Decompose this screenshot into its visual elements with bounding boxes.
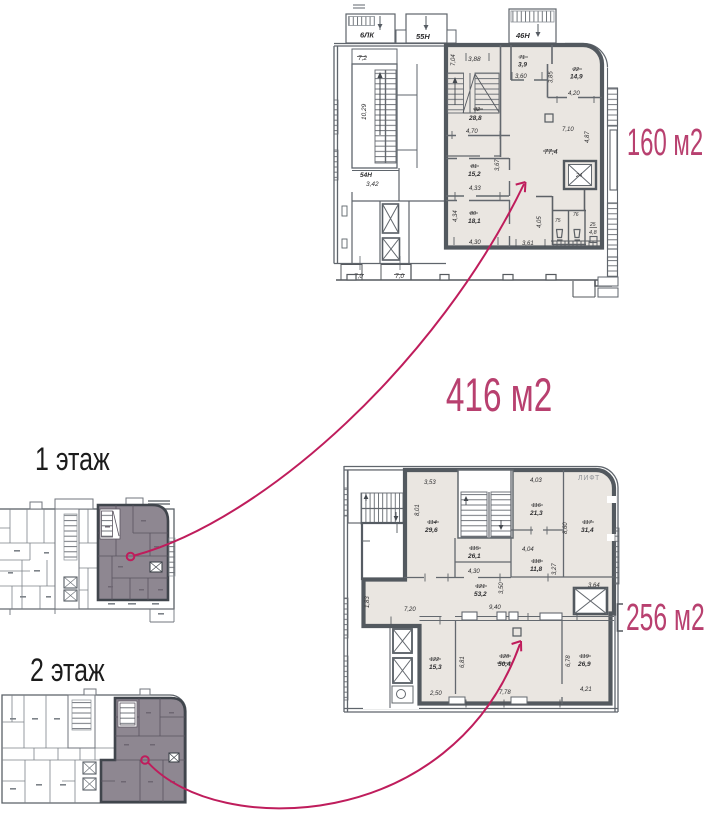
svg-text:3,27: 3,27: [552, 563, 558, 575]
svg-text:416 м2: 416 м2: [446, 368, 552, 421]
svg-text:114: 114: [428, 520, 437, 526]
svg-text:29,6: 29,6: [424, 527, 438, 534]
svg-text:46Н: 46Н: [515, 31, 530, 40]
svg-text:25: 25: [589, 222, 596, 228]
svg-text:3,50: 3,50: [499, 582, 505, 594]
svg-text:4,70: 4,70: [466, 129, 478, 135]
svg-text:76: 76: [573, 212, 579, 218]
svg-text:4,87: 4,87: [585, 131, 591, 143]
svg-text:21,3: 21,3: [529, 510, 543, 517]
svg-text:4,21: 4,21: [580, 687, 592, 693]
svg-text:160 м2: 160 м2: [627, 120, 703, 163]
svg-text:3,88: 3,88: [468, 56, 481, 63]
svg-text:75: 75: [555, 218, 561, 224]
svg-text:24: 24: [575, 173, 582, 179]
svg-text:15,2: 15,2: [468, 171, 481, 178]
svg-text:1,83: 1,83: [365, 596, 371, 608]
svg-text:80: 80: [470, 211, 477, 217]
svg-text:22: 22: [572, 67, 579, 73]
svg-text:4,33: 4,33: [469, 186, 481, 192]
svg-text:4,30: 4,30: [468, 569, 480, 575]
svg-text:55Н: 55Н: [416, 32, 430, 41]
svg-text:7,20: 7,20: [404, 607, 416, 613]
svg-text:4,8: 4,8: [589, 230, 598, 236]
svg-text:26,1: 26,1: [467, 553, 481, 560]
svg-text:7,2: 7,2: [358, 55, 367, 62]
svg-text:71: 71: [519, 55, 525, 61]
svg-text:119: 119: [580, 654, 589, 660]
svg-text:82: 82: [474, 107, 480, 113]
svg-text:121: 121: [476, 584, 485, 590]
svg-text:4,20: 4,20: [568, 91, 580, 97]
svg-text:3,85: 3,85: [549, 71, 555, 83]
svg-text:7,04: 7,04: [451, 54, 457, 66]
svg-text:118: 118: [532, 559, 542, 565]
svg-text:3,53: 3,53: [424, 480, 436, 486]
svg-text:ЛИФТ: ЛИФТ: [578, 475, 600, 482]
svg-text:81: 81: [471, 164, 477, 170]
svg-text:77,4: 77,4: [544, 149, 558, 156]
svg-text:2 этаж: 2 этаж: [30, 653, 105, 689]
svg-text:122: 122: [430, 657, 439, 663]
svg-text:3,67: 3,67: [495, 159, 501, 171]
svg-text:4,04: 4,04: [522, 547, 534, 553]
svg-text:8,60: 8,60: [563, 522, 569, 534]
svg-text:2,50: 2,50: [429, 691, 442, 697]
svg-text:116: 116: [532, 503, 542, 509]
svg-text:115: 115: [470, 546, 480, 552]
svg-text:54Н: 54Н: [360, 172, 372, 179]
svg-text:3,61: 3,61: [522, 241, 534, 247]
svg-text:1 этаж: 1 этаж: [35, 442, 110, 478]
svg-text:18,1: 18,1: [468, 218, 481, 225]
svg-text:256 м2: 256 м2: [626, 596, 705, 639]
svg-text:50,4: 50,4: [498, 661, 511, 668]
svg-text:14,9: 14,9: [570, 74, 583, 81]
svg-text:4,34: 4,34: [453, 210, 459, 222]
svg-text:10,29: 10,29: [361, 103, 368, 120]
svg-text:9,40: 9,40: [489, 605, 501, 611]
svg-text:4,30: 4,30: [469, 240, 481, 246]
svg-text:4,03: 4,03: [530, 478, 542, 484]
svg-text:26,9: 26,9: [577, 661, 591, 668]
svg-text:53,2: 53,2: [474, 591, 487, 598]
svg-text:28,8: 28,8: [468, 115, 482, 122]
svg-text:8,01: 8,01: [415, 504, 421, 516]
svg-text:11,8: 11,8: [530, 566, 543, 573]
svg-text:7,78: 7,78: [499, 690, 511, 696]
svg-text:31,4: 31,4: [581, 527, 594, 534]
svg-text:6,78: 6,78: [566, 655, 572, 667]
svg-text:6ЛК: 6ЛК: [360, 31, 375, 40]
svg-text:4,05: 4,05: [537, 216, 543, 228]
svg-text:117: 117: [583, 520, 593, 526]
svg-text:3,9: 3,9: [518, 62, 527, 69]
svg-text:7,10: 7,10: [562, 127, 574, 133]
svg-text:7,0: 7,0: [395, 273, 404, 280]
svg-text:6,81: 6,81: [460, 656, 466, 668]
svg-text:15,3: 15,3: [429, 664, 442, 671]
svg-text:128: 128: [500, 654, 510, 660]
svg-text:3,60: 3,60: [515, 74, 527, 80]
svg-text:3,42: 3,42: [366, 181, 379, 188]
